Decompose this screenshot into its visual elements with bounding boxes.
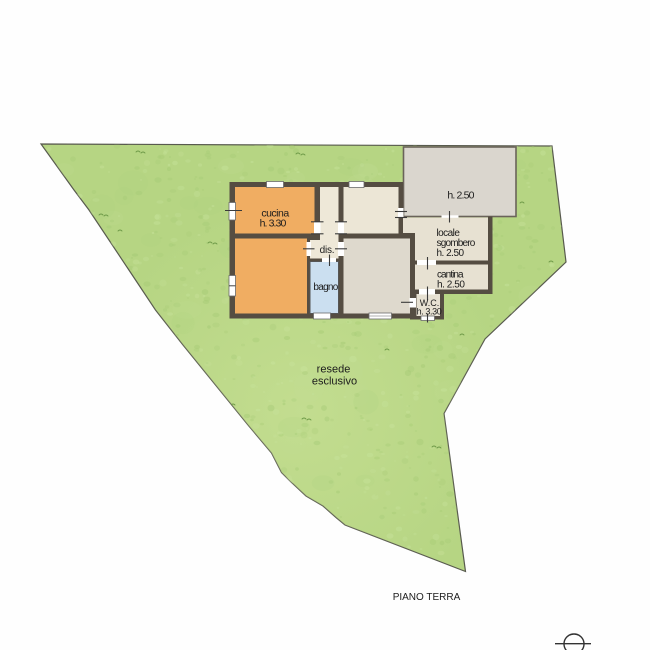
svg-text:bagno: bagno: [313, 282, 338, 293]
svg-text:resede: resede: [317, 364, 351, 376]
svg-text:h. 2.50: h. 2.50: [437, 279, 465, 290]
svg-text:h. 2.50: h. 2.50: [437, 248, 465, 259]
svg-text:dis.: dis.: [320, 245, 335, 256]
svg-text:h. 2.50: h. 2.50: [447, 190, 474, 202]
svg-text:h. 3.30: h. 3.30: [417, 306, 442, 316]
svg-text:esclusivo: esclusivo: [312, 376, 357, 388]
svg-text:PIANO TERRA: PIANO TERRA: [393, 592, 461, 603]
svg-text:h. 3.30: h. 3.30: [260, 218, 287, 230]
